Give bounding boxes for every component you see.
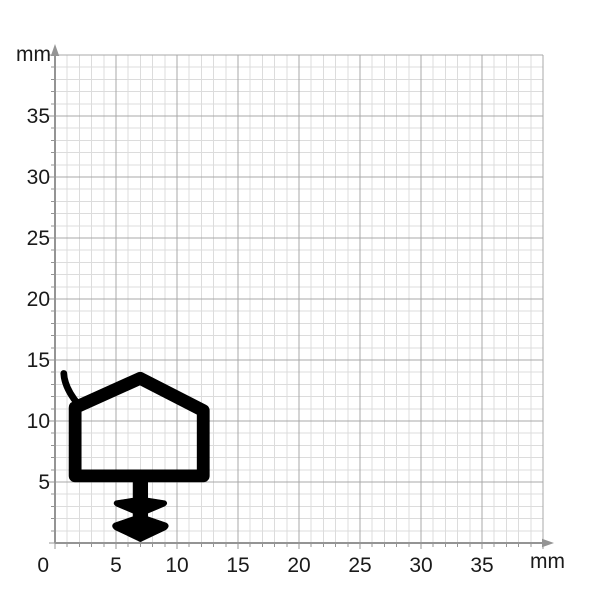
- y-tick-label: 35: [27, 105, 50, 128]
- x-tick-label: 10: [165, 554, 188, 577]
- profile-diagram: 051015202530355101520253035 mm mm: [0, 0, 600, 600]
- x-axis-unit-label: mm: [530, 551, 565, 573]
- diagram-svg: 051015202530355101520253035: [0, 0, 600, 600]
- x-tick-label: 20: [287, 554, 310, 577]
- y-axis-arrow-icon: [51, 44, 59, 56]
- profile-lip: [64, 373, 79, 405]
- y-tick-label: 30: [27, 166, 50, 189]
- x-tick-label: 25: [348, 554, 371, 577]
- y-tick-label: 25: [27, 227, 50, 250]
- y-tick-label: 20: [27, 288, 50, 311]
- y-axis-unit-label: mm: [16, 44, 51, 66]
- x-tick-label: 5: [110, 554, 122, 577]
- y-tick-label: 15: [27, 349, 50, 372]
- x-tick-label: 15: [226, 554, 249, 577]
- x-tick-label: 0: [37, 554, 49, 577]
- y-tick-label: 10: [27, 410, 50, 433]
- y-tick-label: 5: [38, 471, 50, 494]
- profile-chamber: [75, 378, 203, 476]
- x-tick-label: 30: [409, 554, 432, 577]
- x-tick-label: 35: [470, 554, 493, 577]
- x-axis-arrow-icon: [542, 539, 554, 547]
